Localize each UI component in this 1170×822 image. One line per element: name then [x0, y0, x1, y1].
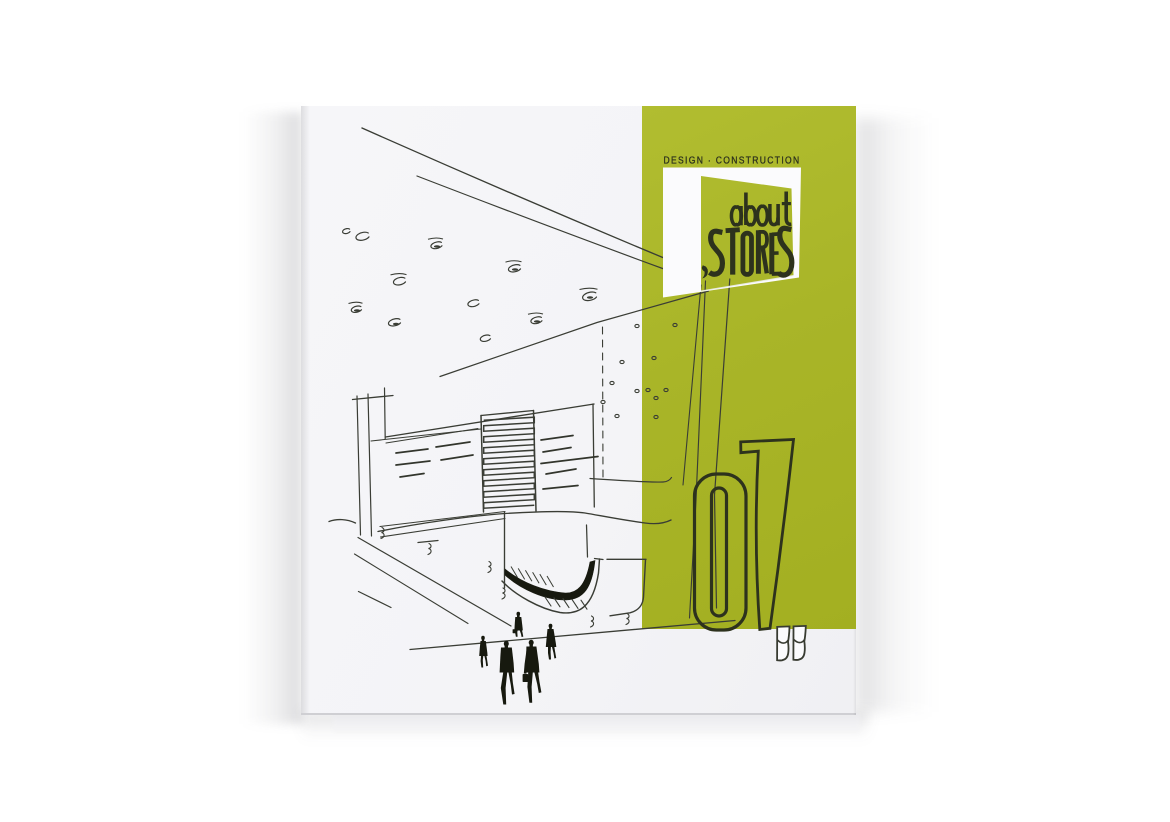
svg-text:DESIGN · CONSTRUCTION: DESIGN · CONSTRUCTION — [664, 156, 801, 167]
